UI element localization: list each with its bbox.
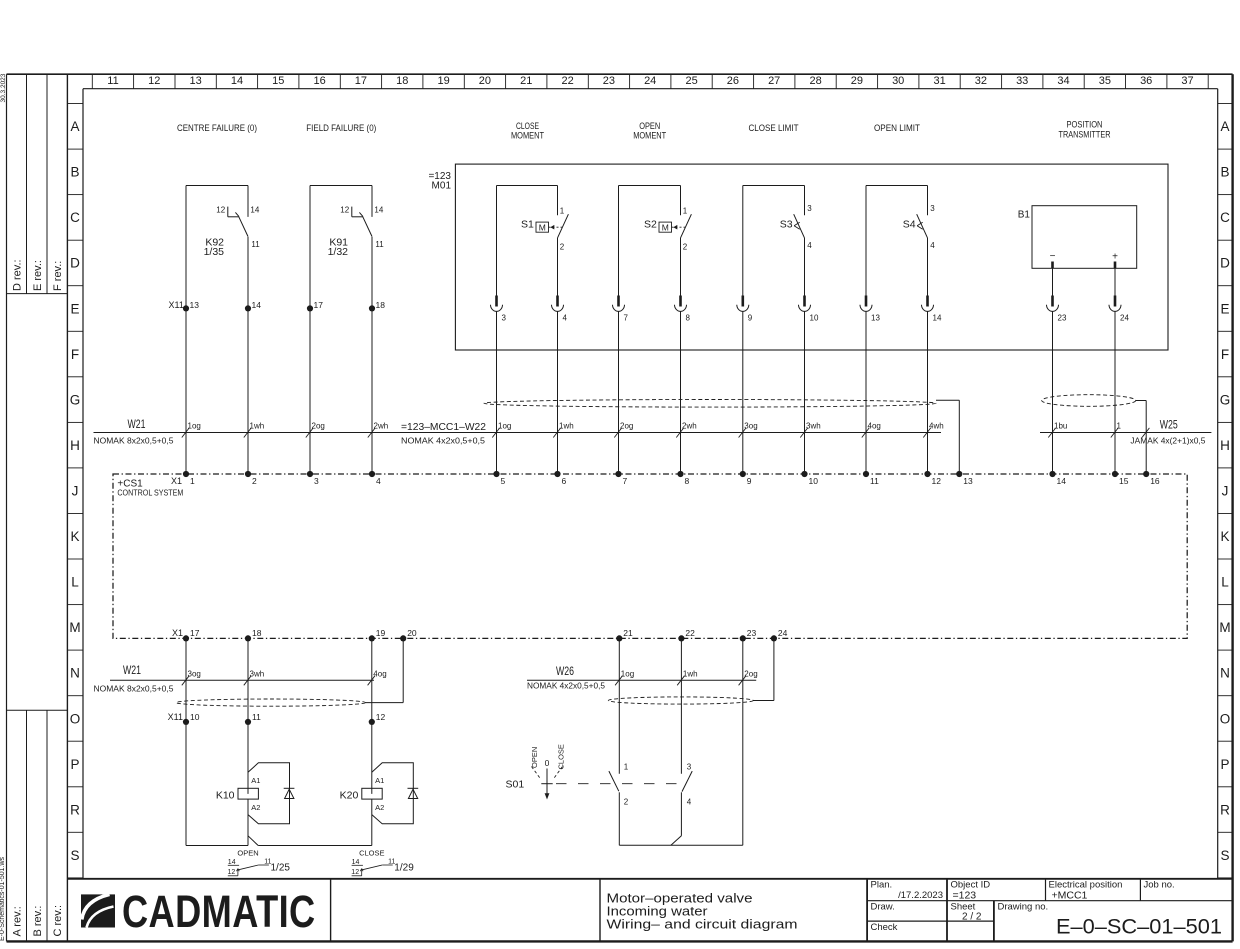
svg-text:R: R — [1220, 802, 1230, 817]
svg-text:F: F — [1221, 347, 1229, 362]
svg-text:37: 37 — [1181, 75, 1193, 87]
svg-text:3: 3 — [502, 314, 507, 323]
svg-text:CONTROL SYSTEM: CONTROL SYSTEM — [117, 487, 183, 497]
svg-text:Job no.: Job no. — [1144, 879, 1175, 890]
svg-text:11: 11 — [252, 712, 261, 722]
svg-text:A: A — [70, 119, 79, 134]
svg-text:FIELD FAILURE (0): FIELD FAILURE (0) — [306, 123, 376, 133]
svg-text:B: B — [70, 165, 79, 180]
svg-text:X11: X11 — [168, 712, 183, 722]
svg-text:G: G — [70, 392, 81, 407]
svg-text:TRANSMITTER: TRANSMITTER — [1059, 129, 1111, 139]
svg-text:W25: W25 — [1160, 419, 1178, 431]
svg-text:M: M — [539, 222, 546, 232]
svg-text:L: L — [71, 575, 79, 590]
svg-text:14: 14 — [933, 314, 942, 323]
svg-text:4: 4 — [563, 314, 568, 323]
svg-text:23: 23 — [603, 75, 615, 87]
svg-text:21: 21 — [623, 628, 633, 638]
svg-text:15: 15 — [1119, 476, 1129, 486]
svg-text:MOMENT: MOMENT — [633, 131, 666, 141]
svg-text:12: 12 — [351, 869, 359, 876]
svg-text:+: + — [1112, 252, 1118, 263]
svg-text:X1: X1 — [171, 476, 182, 486]
svg-text:OPEN LIMIT: OPEN LIMIT — [874, 123, 920, 133]
svg-text:30: 30 — [892, 75, 904, 87]
svg-text:W21: W21 — [123, 665, 141, 677]
svg-text:O: O — [70, 711, 81, 726]
svg-text:23: 23 — [747, 628, 757, 638]
svg-text:3wh: 3wh — [806, 422, 821, 431]
svg-text:15: 15 — [272, 75, 284, 87]
svg-text:N: N — [1220, 666, 1230, 681]
svg-text:OPEN: OPEN — [237, 849, 258, 858]
svg-text:Draw.: Draw. — [871, 901, 895, 912]
svg-text:16: 16 — [313, 75, 325, 87]
svg-text:A2: A2 — [251, 803, 260, 812]
svg-text:B rev.:: B rev.: — [32, 906, 44, 937]
svg-text:14: 14 — [250, 206, 259, 215]
svg-text:28: 28 — [809, 75, 821, 87]
svg-text:Check: Check — [871, 922, 898, 933]
svg-text:R: R — [70, 802, 80, 817]
svg-text:S: S — [70, 848, 79, 863]
svg-text:3: 3 — [807, 204, 812, 213]
svg-text:10: 10 — [190, 712, 200, 722]
svg-text:14: 14 — [1057, 476, 1067, 486]
svg-text:1wh: 1wh — [559, 422, 574, 431]
svg-text:3og: 3og — [188, 669, 201, 678]
svg-text:O: O — [1220, 711, 1231, 726]
svg-text:C: C — [1220, 210, 1230, 225]
svg-text:2wh: 2wh — [682, 422, 697, 431]
svg-text:C rev.:: C rev.: — [52, 905, 64, 937]
svg-text:25: 25 — [685, 75, 697, 87]
svg-text:1: 1 — [190, 476, 195, 486]
svg-text:CLOSE: CLOSE — [557, 744, 566, 769]
svg-text:4wh: 4wh — [929, 422, 944, 431]
svg-text:18: 18 — [252, 628, 262, 638]
svg-text:Wiring– and circuit diagram: Wiring– and circuit diagram — [607, 917, 798, 932]
svg-text:N: N — [70, 666, 80, 681]
svg-text:OPEN: OPEN — [639, 121, 660, 131]
svg-text:14: 14 — [252, 300, 262, 310]
svg-text:Plan.: Plan. — [871, 879, 893, 890]
svg-text:D: D — [70, 256, 80, 271]
svg-text:Drawing no.: Drawing no. — [998, 901, 1049, 912]
svg-text:C: C — [70, 210, 80, 225]
svg-text:S3: S3 — [780, 219, 793, 231]
svg-text:−: − — [1050, 251, 1056, 262]
svg-text:F rev.:: F rev.: — [52, 261, 64, 291]
svg-text:23: 23 — [1058, 314, 1067, 323]
svg-text:24: 24 — [1120, 314, 1129, 323]
svg-text:K: K — [1220, 529, 1229, 544]
svg-text:13: 13 — [189, 75, 201, 87]
svg-text:NOMAK 8x2x0,5+0,5: NOMAK 8x2x0,5+0,5 — [94, 436, 174, 446]
svg-text:NOMAK 4x2x0,5+0,5: NOMAK 4x2x0,5+0,5 — [401, 436, 485, 446]
svg-text:16: 16 — [1150, 476, 1160, 486]
svg-text:20: 20 — [479, 75, 491, 87]
svg-text:21: 21 — [520, 75, 532, 87]
svg-text:E: E — [1220, 301, 1229, 316]
svg-text:1og: 1og — [188, 422, 201, 431]
svg-text:18: 18 — [396, 75, 408, 87]
svg-text:20: 20 — [407, 628, 417, 638]
svg-text:12: 12 — [148, 75, 160, 87]
svg-text:1wh: 1wh — [250, 422, 265, 431]
svg-text:3: 3 — [930, 204, 935, 213]
svg-text:B: B — [1220, 165, 1229, 180]
svg-text:1/32: 1/32 — [328, 246, 349, 258]
svg-text:M: M — [662, 222, 669, 232]
svg-text:12: 12 — [216, 206, 225, 215]
svg-text:9: 9 — [748, 314, 753, 323]
svg-text:4: 4 — [930, 241, 935, 250]
svg-text:7: 7 — [623, 476, 628, 486]
svg-text:3og: 3og — [744, 422, 757, 431]
svg-text:K20: K20 — [340, 789, 359, 801]
svg-text:POSITION: POSITION — [1067, 120, 1103, 130]
svg-text:OPEN: OPEN — [530, 747, 539, 768]
svg-text:M01: M01 — [432, 181, 452, 192]
svg-text:3: 3 — [687, 762, 692, 771]
svg-text:S01: S01 — [506, 778, 525, 790]
svg-text:J: J — [1222, 484, 1229, 499]
svg-text:17: 17 — [314, 300, 324, 310]
svg-text:X1: X1 — [172, 628, 183, 638]
svg-text:A rev.:: A rev.: — [12, 906, 24, 936]
svg-text:5: 5 — [501, 476, 506, 486]
svg-text:2: 2 — [252, 476, 257, 486]
svg-text:2wh: 2wh — [374, 422, 389, 431]
svg-text:14: 14 — [231, 75, 243, 87]
svg-text:D rev.:: D rev.: — [12, 259, 24, 291]
svg-text:E-0-Schematics-01-501.ws: E-0-Schematics-01-501.ws — [0, 856, 6, 941]
svg-text:19: 19 — [437, 75, 449, 87]
svg-text:22: 22 — [561, 75, 573, 87]
svg-text:CLOSE: CLOSE — [359, 849, 384, 858]
svg-text:G: G — [1220, 392, 1231, 407]
svg-text:0: 0 — [545, 758, 550, 768]
svg-text:/17.2.2023: /17.2.2023 — [898, 890, 943, 901]
svg-text:27: 27 — [768, 75, 780, 87]
svg-text:11: 11 — [107, 75, 118, 87]
svg-text:12: 12 — [340, 206, 349, 215]
svg-text:1og: 1og — [498, 422, 511, 431]
svg-text:1bu: 1bu — [1054, 422, 1067, 431]
svg-text:11: 11 — [375, 240, 384, 249]
svg-text:2: 2 — [624, 798, 629, 807]
svg-text:9: 9 — [747, 476, 752, 486]
svg-text:4: 4 — [687, 798, 692, 807]
svg-text:E rev.:: E rev.: — [32, 260, 44, 291]
svg-text:S: S — [1220, 848, 1229, 863]
svg-text:14: 14 — [374, 206, 383, 215]
svg-text:31: 31 — [933, 75, 945, 87]
svg-text:3: 3 — [314, 476, 319, 486]
svg-text:+MCC1: +MCC1 — [1052, 890, 1088, 902]
svg-text:26: 26 — [727, 75, 739, 87]
svg-text:13: 13 — [190, 300, 200, 310]
svg-text:6: 6 — [562, 476, 567, 486]
svg-text:13: 13 — [871, 314, 880, 323]
svg-text:A: A — [1220, 119, 1229, 134]
svg-text:35: 35 — [1099, 75, 1111, 87]
svg-text:NOMAK 4x2x0,5+0,5: NOMAK 4x2x0,5+0,5 — [527, 681, 605, 691]
svg-text:P: P — [70, 757, 79, 772]
svg-text:10: 10 — [810, 314, 819, 323]
svg-text:2: 2 — [560, 243, 565, 252]
svg-text:1/29: 1/29 — [394, 863, 414, 874]
svg-text:CENTRE FAILURE (0): CENTRE FAILURE (0) — [177, 123, 257, 133]
svg-text:11: 11 — [251, 240, 260, 249]
svg-text:34: 34 — [1057, 75, 1069, 87]
svg-text:19: 19 — [376, 628, 386, 638]
svg-text:H: H — [70, 438, 80, 453]
svg-text:=123: =123 — [953, 890, 977, 902]
svg-text:7: 7 — [624, 314, 629, 323]
svg-text:M: M — [69, 620, 80, 635]
svg-text:CLOSE: CLOSE — [516, 121, 539, 131]
svg-text:2og: 2og — [744, 669, 757, 678]
svg-text:K: K — [70, 529, 79, 544]
svg-text:MOMENT: MOMENT — [511, 131, 544, 141]
svg-text:A1: A1 — [251, 776, 260, 785]
svg-text:F: F — [71, 347, 79, 362]
svg-text:B1: B1 — [1018, 210, 1031, 221]
svg-text:W26: W26 — [556, 666, 574, 678]
svg-text:1: 1 — [560, 207, 565, 216]
svg-text:11: 11 — [870, 476, 879, 486]
svg-text:K10: K10 — [216, 789, 235, 801]
svg-text:2: 2 — [683, 243, 688, 252]
svg-text:12: 12 — [228, 869, 236, 876]
svg-text:4: 4 — [376, 476, 381, 486]
svg-text:NOMAK 8x2x0,5+0,5: NOMAK 8x2x0,5+0,5 — [94, 684, 174, 694]
svg-text:32: 32 — [975, 75, 987, 87]
svg-text:4og: 4og — [868, 422, 881, 431]
svg-text:A2: A2 — [375, 803, 384, 812]
svg-text:24: 24 — [778, 628, 788, 638]
svg-text:S4: S4 — [903, 219, 916, 231]
svg-text:L: L — [1221, 575, 1229, 590]
svg-text:P: P — [1220, 757, 1229, 772]
svg-text:S2: S2 — [644, 219, 657, 231]
svg-text:1/25: 1/25 — [271, 863, 291, 874]
svg-text:X11: X11 — [169, 300, 184, 310]
svg-text:=123–MCC1–W22: =123–MCC1–W22 — [401, 421, 486, 433]
svg-text:17: 17 — [190, 628, 200, 638]
svg-text:1: 1 — [1117, 422, 1122, 431]
svg-text:1/35: 1/35 — [204, 246, 225, 258]
svg-text:22: 22 — [685, 628, 695, 638]
svg-text:13: 13 — [963, 476, 973, 486]
svg-text:CADMATIC: CADMATIC — [122, 886, 316, 937]
svg-text:CLOSE LIMIT: CLOSE LIMIT — [749, 123, 799, 133]
svg-text:S1: S1 — [521, 219, 534, 231]
svg-text:D: D — [1220, 256, 1230, 271]
svg-text:8: 8 — [686, 314, 691, 323]
svg-text:J: J — [72, 484, 79, 499]
svg-text:12: 12 — [932, 476, 942, 486]
svg-text:H: H — [1220, 438, 1230, 453]
svg-text:10: 10 — [809, 476, 819, 486]
svg-text:8: 8 — [685, 476, 690, 486]
svg-text:29: 29 — [851, 75, 863, 87]
svg-text:JAMAK 4x(2+1)x0,5: JAMAK 4x(2+1)x0,5 — [1130, 435, 1205, 445]
svg-text:1wh: 1wh — [683, 669, 698, 678]
svg-text:E: E — [70, 301, 79, 316]
svg-text:4og: 4og — [373, 669, 386, 678]
svg-text:M: M — [1219, 620, 1230, 635]
svg-text:4: 4 — [807, 241, 812, 250]
svg-text:30.3.2023: 30.3.2023 — [0, 73, 7, 102]
svg-text:1og: 1og — [621, 669, 634, 678]
svg-text:33: 33 — [1016, 75, 1028, 87]
svg-text:12: 12 — [376, 712, 386, 722]
svg-text:3wh: 3wh — [250, 669, 265, 678]
svg-text:E–0–SC–01–501: E–0–SC–01–501 — [1056, 915, 1222, 939]
svg-text:24: 24 — [644, 75, 656, 87]
svg-text:17: 17 — [355, 75, 367, 87]
svg-text:2 / 2: 2 / 2 — [962, 912, 982, 923]
svg-text:2og: 2og — [620, 422, 633, 431]
svg-text:W21: W21 — [128, 419, 146, 431]
svg-text:18: 18 — [376, 300, 386, 310]
svg-text:1: 1 — [683, 207, 688, 216]
svg-text:1: 1 — [624, 762, 629, 771]
svg-text:36: 36 — [1140, 75, 1152, 87]
svg-text:2og: 2og — [312, 422, 325, 431]
svg-text:A1: A1 — [375, 776, 384, 785]
